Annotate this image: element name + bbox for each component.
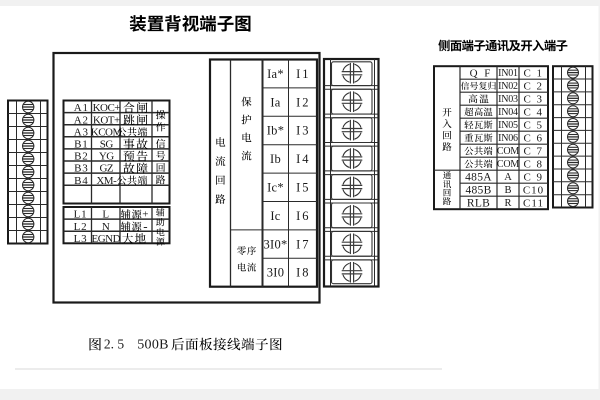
svg-text:I7: I7 bbox=[296, 237, 310, 251]
svg-text:485B: 485B bbox=[465, 185, 491, 197]
svg-text:Ib*: Ib* bbox=[267, 124, 285, 138]
svg-text:C 7: C 7 bbox=[523, 145, 543, 157]
svg-text:C 1: C 1 bbox=[523, 67, 543, 79]
svg-text:C11: C11 bbox=[523, 197, 544, 209]
svg-text:R: R bbox=[504, 198, 511, 209]
svg-text:I4: I4 bbox=[296, 152, 310, 166]
svg-text:Ic*: Ic* bbox=[267, 181, 284, 195]
svg-text:C10: C10 bbox=[523, 184, 544, 196]
svg-text:Ia: Ia bbox=[270, 95, 280, 109]
svg-text:COM: COM bbox=[497, 146, 519, 157]
svg-text:I6: I6 bbox=[296, 209, 310, 223]
svg-text:A: A bbox=[504, 172, 512, 183]
svg-text:C 9: C 9 bbox=[523, 171, 543, 183]
svg-text:A2: A2 bbox=[74, 114, 89, 126]
svg-text:I5: I5 bbox=[296, 181, 310, 195]
svg-text:B2: B2 bbox=[74, 151, 88, 163]
svg-text:I8: I8 bbox=[296, 266, 310, 280]
svg-text:C 2: C 2 bbox=[523, 80, 543, 92]
svg-text:485A: 485A bbox=[465, 172, 492, 184]
svg-text:B3: B3 bbox=[74, 163, 88, 175]
svg-text:SG: SG bbox=[100, 139, 114, 151]
svg-text:IN04: IN04 bbox=[498, 107, 518, 118]
svg-text:KOC+: KOC+ bbox=[93, 102, 121, 114]
svg-text:500B: 500B bbox=[137, 338, 169, 353]
svg-text:C 6: C 6 bbox=[523, 132, 543, 144]
svg-text:Ia*: Ia* bbox=[267, 67, 284, 81]
svg-text:Q F: Q F bbox=[470, 67, 493, 79]
svg-text:N: N bbox=[102, 221, 110, 233]
svg-text:KCOM: KCOM bbox=[91, 126, 123, 138]
svg-text:2. 5: 2. 5 bbox=[104, 337, 125, 352]
svg-text:B4: B4 bbox=[74, 175, 88, 187]
svg-text:L1: L1 bbox=[74, 209, 88, 221]
svg-text:-: - bbox=[143, 219, 147, 234]
svg-text:B1: B1 bbox=[74, 139, 88, 151]
svg-text:I3: I3 bbox=[296, 124, 310, 138]
svg-text:COM: COM bbox=[497, 159, 519, 170]
svg-text:IN03: IN03 bbox=[498, 94, 518, 105]
svg-text:C 3: C 3 bbox=[523, 93, 543, 105]
svg-text:3I0*: 3I0* bbox=[263, 237, 287, 251]
svg-text:C 8: C 8 bbox=[523, 158, 543, 170]
svg-text:I1: I1 bbox=[296, 67, 310, 81]
svg-text:IN02: IN02 bbox=[498, 81, 518, 92]
svg-text:EGND: EGND bbox=[92, 233, 121, 245]
svg-text:Ic: Ic bbox=[270, 209, 280, 223]
svg-text:RLB: RLB bbox=[467, 198, 490, 210]
svg-text:KOT+: KOT+ bbox=[93, 114, 120, 126]
svg-text:IN06: IN06 bbox=[498, 133, 518, 144]
svg-text:A3: A3 bbox=[74, 126, 89, 138]
svg-text:C 5: C 5 bbox=[523, 119, 543, 131]
svg-text:GZ: GZ bbox=[99, 163, 113, 175]
svg-text:B: B bbox=[504, 185, 511, 196]
svg-text:IN01: IN01 bbox=[498, 68, 518, 79]
svg-text:IN05: IN05 bbox=[498, 120, 518, 131]
svg-text:L3: L3 bbox=[74, 233, 88, 245]
svg-text:YG: YG bbox=[99, 151, 114, 163]
svg-text:L: L bbox=[102, 209, 109, 221]
svg-text:I2: I2 bbox=[296, 95, 310, 109]
svg-text:C 4: C 4 bbox=[523, 106, 543, 118]
svg-text:Ib: Ib bbox=[270, 152, 281, 166]
svg-text:A1: A1 bbox=[74, 102, 89, 114]
svg-text:3I0: 3I0 bbox=[267, 266, 285, 280]
svg-text:XM-: XM- bbox=[96, 175, 117, 187]
svg-text:L2: L2 bbox=[74, 221, 88, 233]
